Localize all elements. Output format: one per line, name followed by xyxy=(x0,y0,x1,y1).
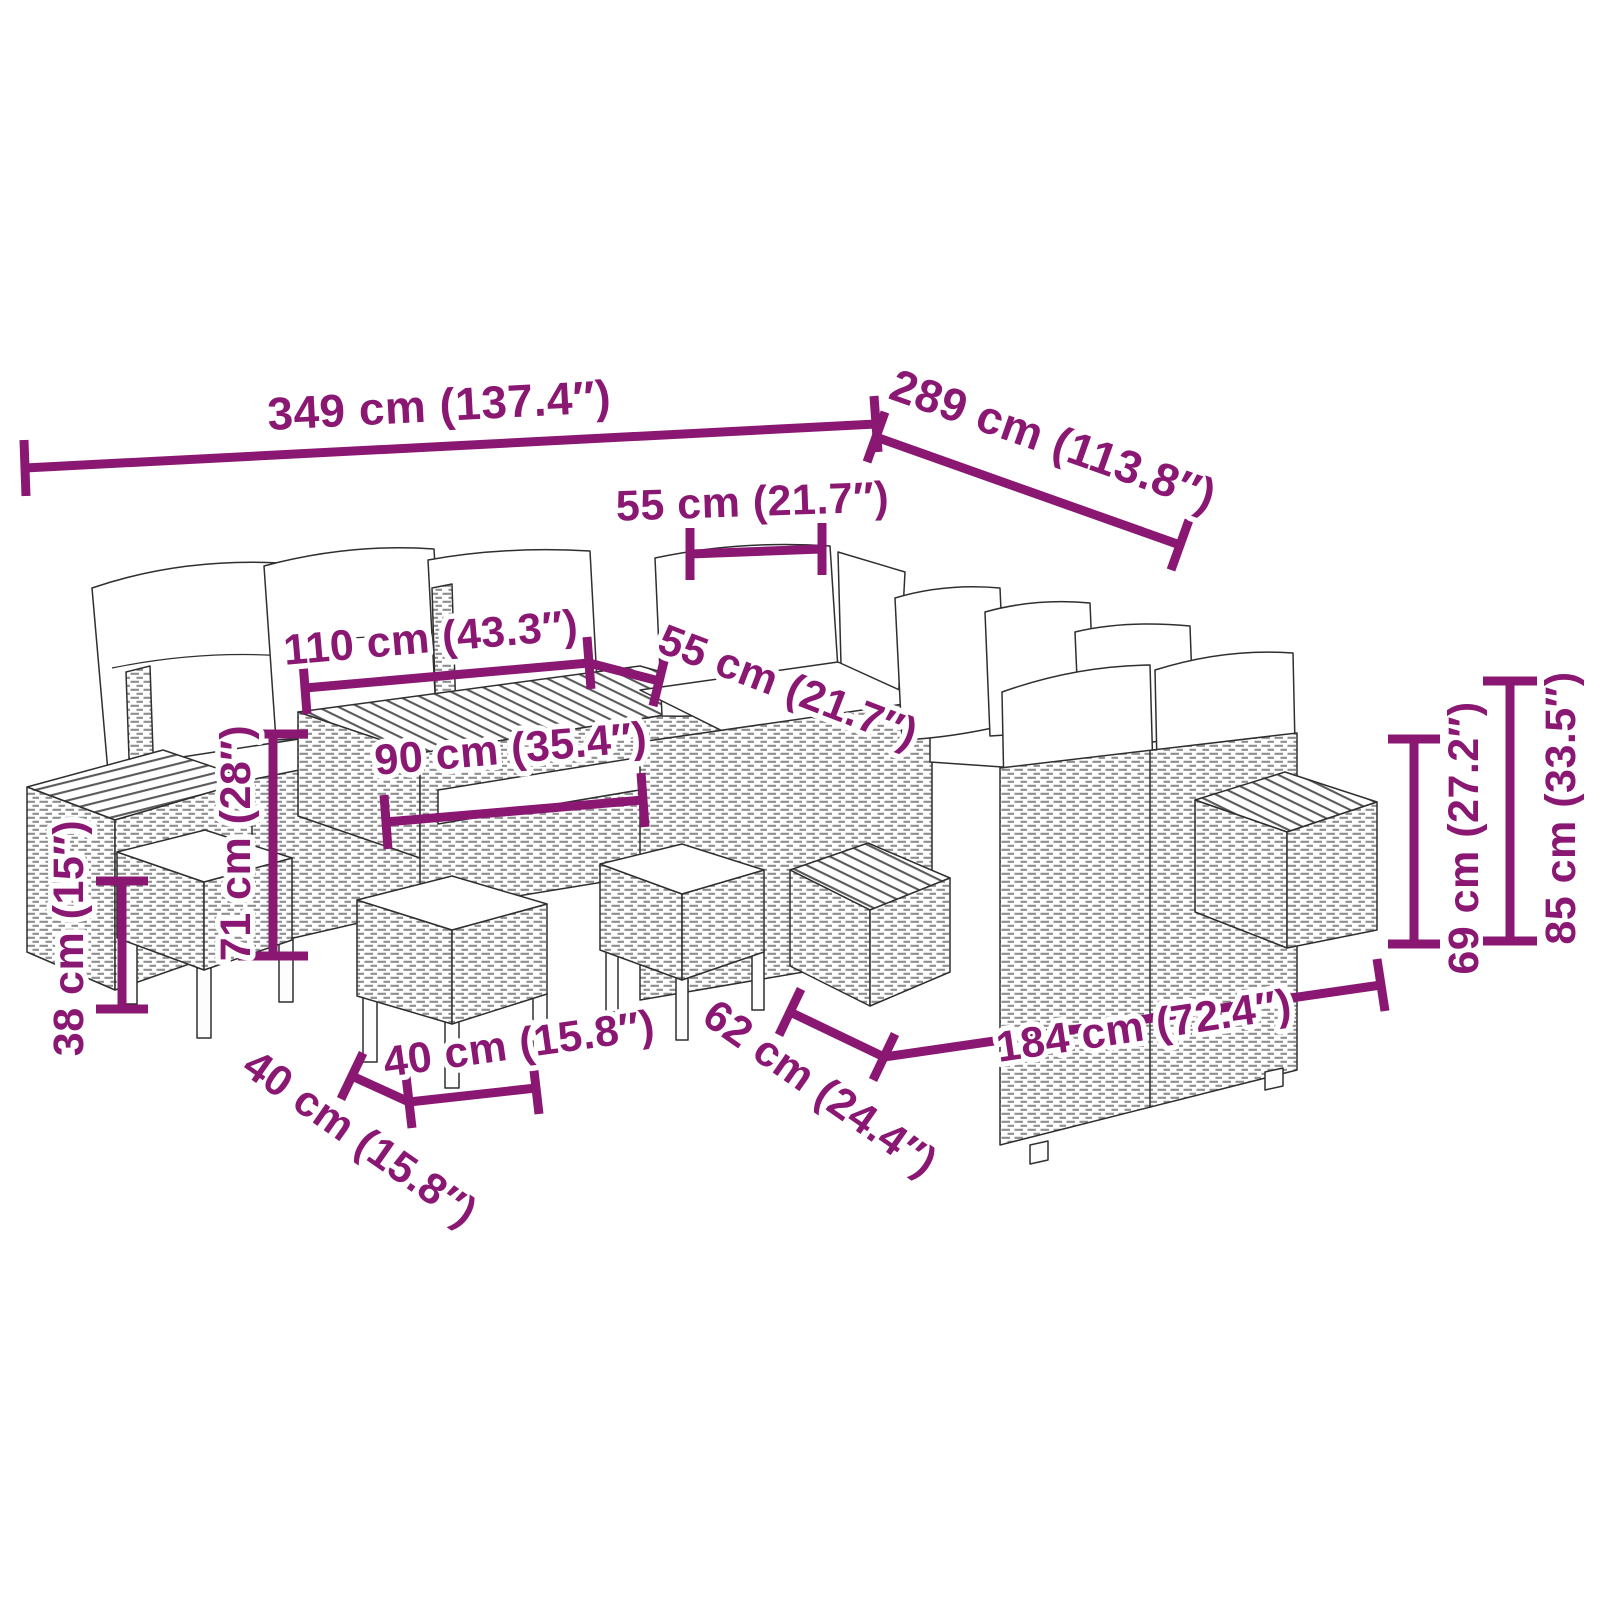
dim-total-height: 85 cm (33.5″) xyxy=(1483,671,1585,944)
dim-label-stool-height: 38 cm (15″) xyxy=(45,820,93,1056)
dim-seat-back-height: 69 cm (27.2″) xyxy=(1388,701,1488,974)
sofa-foot xyxy=(1030,1141,1048,1164)
sofa-foot xyxy=(1265,1068,1283,1090)
dim-total-depth: 289 cm (113.8″) xyxy=(867,358,1223,570)
dim-stool-width: 40 cm (15.8″) xyxy=(380,1001,657,1128)
dim-label-seat-width: 55 cm (21.7″) xyxy=(615,473,890,531)
dim-label-table-height: 71 cm (28″) xyxy=(212,725,260,961)
dim-label-total-width: 349 cm (137.4″) xyxy=(266,370,612,440)
dim-sofa-depth: 62 cm (24.4″) xyxy=(694,989,945,1187)
dimension-diagram-canvas: 349 cm (137.4″) 289 cm (113.8″) 55 cm (2… xyxy=(0,0,1600,1600)
dim-label-sofa-depth: 62 cm (24.4″) xyxy=(694,990,945,1186)
back-cushion xyxy=(92,562,292,772)
dimension-diagram: 349 cm (137.4″) 289 cm (113.8″) 55 cm (2… xyxy=(0,0,1600,1600)
dim-label-seat-back-height: 69 cm (27.2″) xyxy=(1440,701,1488,974)
dim-label-total-height: 85 cm (33.5″) xyxy=(1537,671,1585,944)
